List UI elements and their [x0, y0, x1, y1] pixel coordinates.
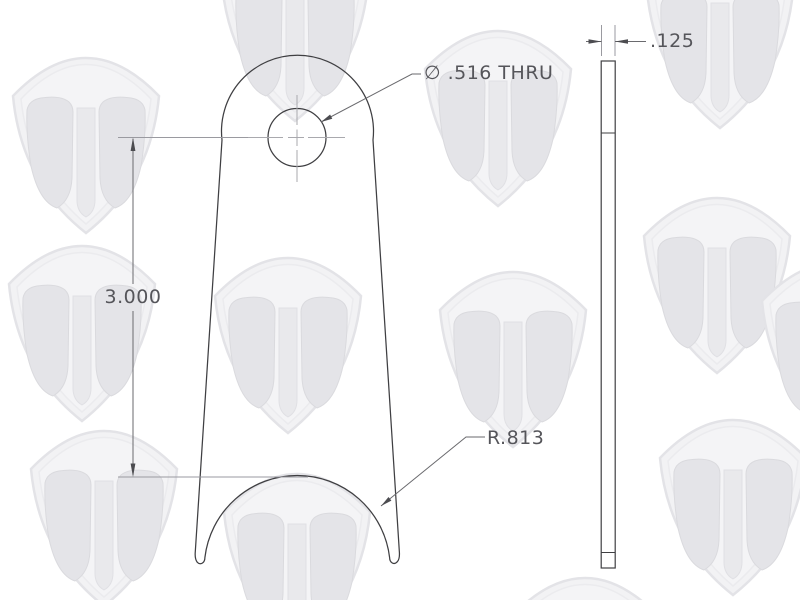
saddle-radius-label: R.813: [487, 428, 544, 448]
side-view: [601, 61, 615, 568]
arrowhead-left: [615, 39, 628, 44]
arrowhead-right: [589, 39, 602, 44]
thickness-label: .125: [650, 31, 694, 51]
saddle-radius-leader: [381, 437, 485, 506]
side-view-outline: [601, 61, 615, 568]
hole-diameter-label: ∅ .516 THRU: [424, 63, 553, 83]
hole-centerlines: [248, 95, 345, 182]
height-dimension-label: 3.000: [102, 287, 164, 307]
drawing-canvas: ∅ .516 THRU 3.000 R.813 .125: [0, 0, 800, 600]
arrowhead-up: [131, 138, 136, 152]
arrowhead-down: [131, 464, 136, 478]
thickness-dimension: [586, 25, 646, 56]
hole-diameter-leader: [321, 74, 421, 122]
arrowhead-hole: [321, 115, 332, 123]
